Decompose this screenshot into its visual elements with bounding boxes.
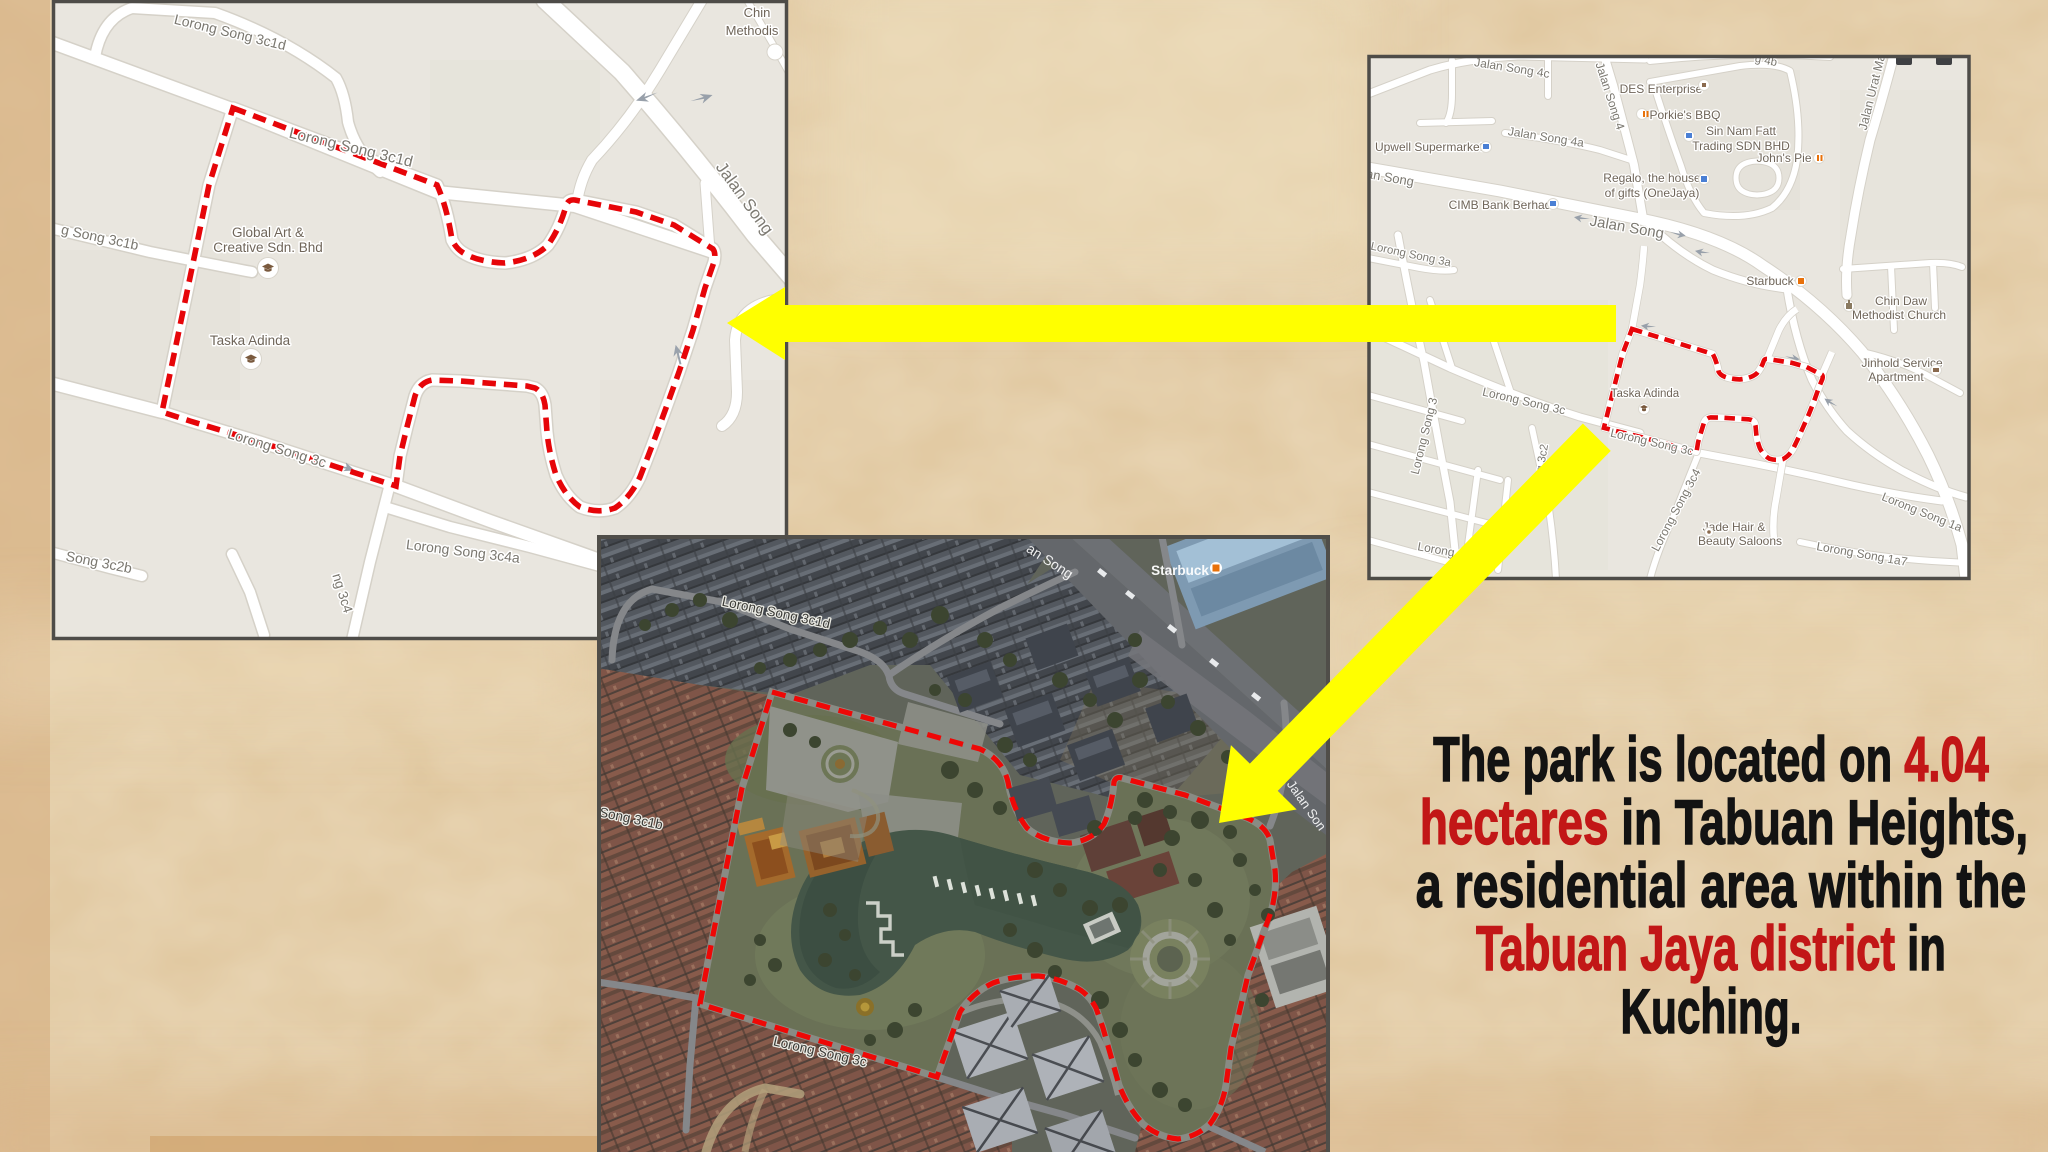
svg-text:John's Pie: John's Pie xyxy=(1757,151,1812,165)
svg-text:CIMB Bank Berhad: CIMB Bank Berhad xyxy=(1449,198,1552,212)
svg-text:Regalo, the house: Regalo, the house xyxy=(1603,171,1701,185)
svg-text:Starbuck: Starbuck xyxy=(1746,274,1794,288)
svg-text:of gifts (OneJaya): of gifts (OneJaya) xyxy=(1605,186,1700,200)
svg-text:Creative Sdn. Bhd: Creative Sdn. Bhd xyxy=(213,240,323,255)
svg-text:Upwell Supermarket: Upwell Supermarket xyxy=(1375,140,1484,154)
svg-text:Taska Adinda: Taska Adinda xyxy=(1611,388,1680,400)
svg-text:Methodis: Methodis xyxy=(726,23,779,38)
svg-text:Chin Daw: Chin Daw xyxy=(1875,294,1927,308)
svg-text:DES Enterprise: DES Enterprise xyxy=(1620,82,1703,96)
svg-text:Chin: Chin xyxy=(744,5,771,20)
svg-text:Methodist Church: Methodist Church xyxy=(1852,308,1946,322)
svg-text:Apartment: Apartment xyxy=(1868,370,1924,384)
svg-text:Global Art &: Global Art & xyxy=(232,225,304,240)
svg-text:Starbuck: Starbuck xyxy=(1151,563,1209,578)
svg-text:Sin Nam Fatt: Sin Nam Fatt xyxy=(1706,124,1777,138)
svg-text:Porkie's BBQ: Porkie's BBQ xyxy=(1650,108,1721,122)
svg-text:Taska Adinda: Taska Adinda xyxy=(210,333,291,348)
